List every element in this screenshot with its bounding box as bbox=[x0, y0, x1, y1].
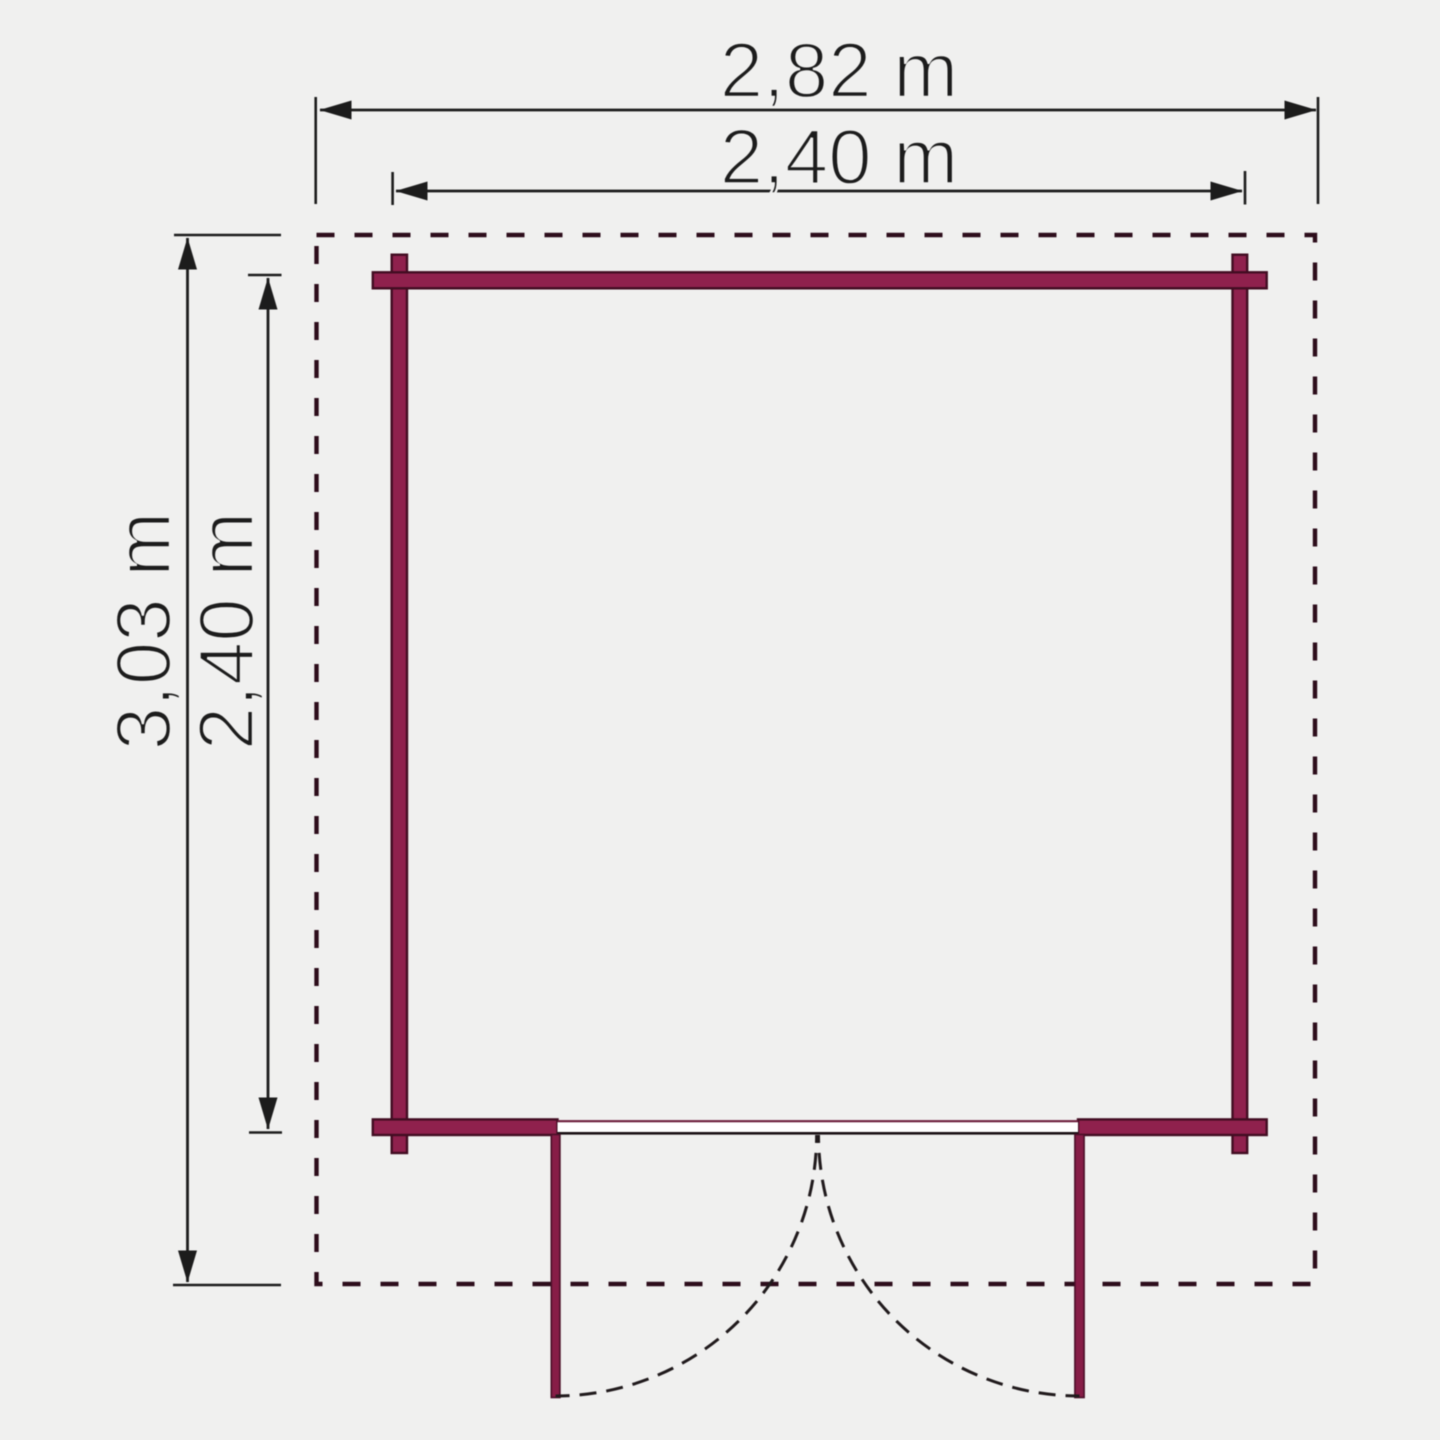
svg-text:2,40 m: 2,40 m bbox=[720, 112, 958, 200]
svg-text:3,03 m: 3,03 m bbox=[99, 512, 187, 750]
svg-text:2,40 m: 2,40 m bbox=[182, 512, 270, 750]
svg-text:2,82 m: 2,82 m bbox=[720, 26, 958, 114]
